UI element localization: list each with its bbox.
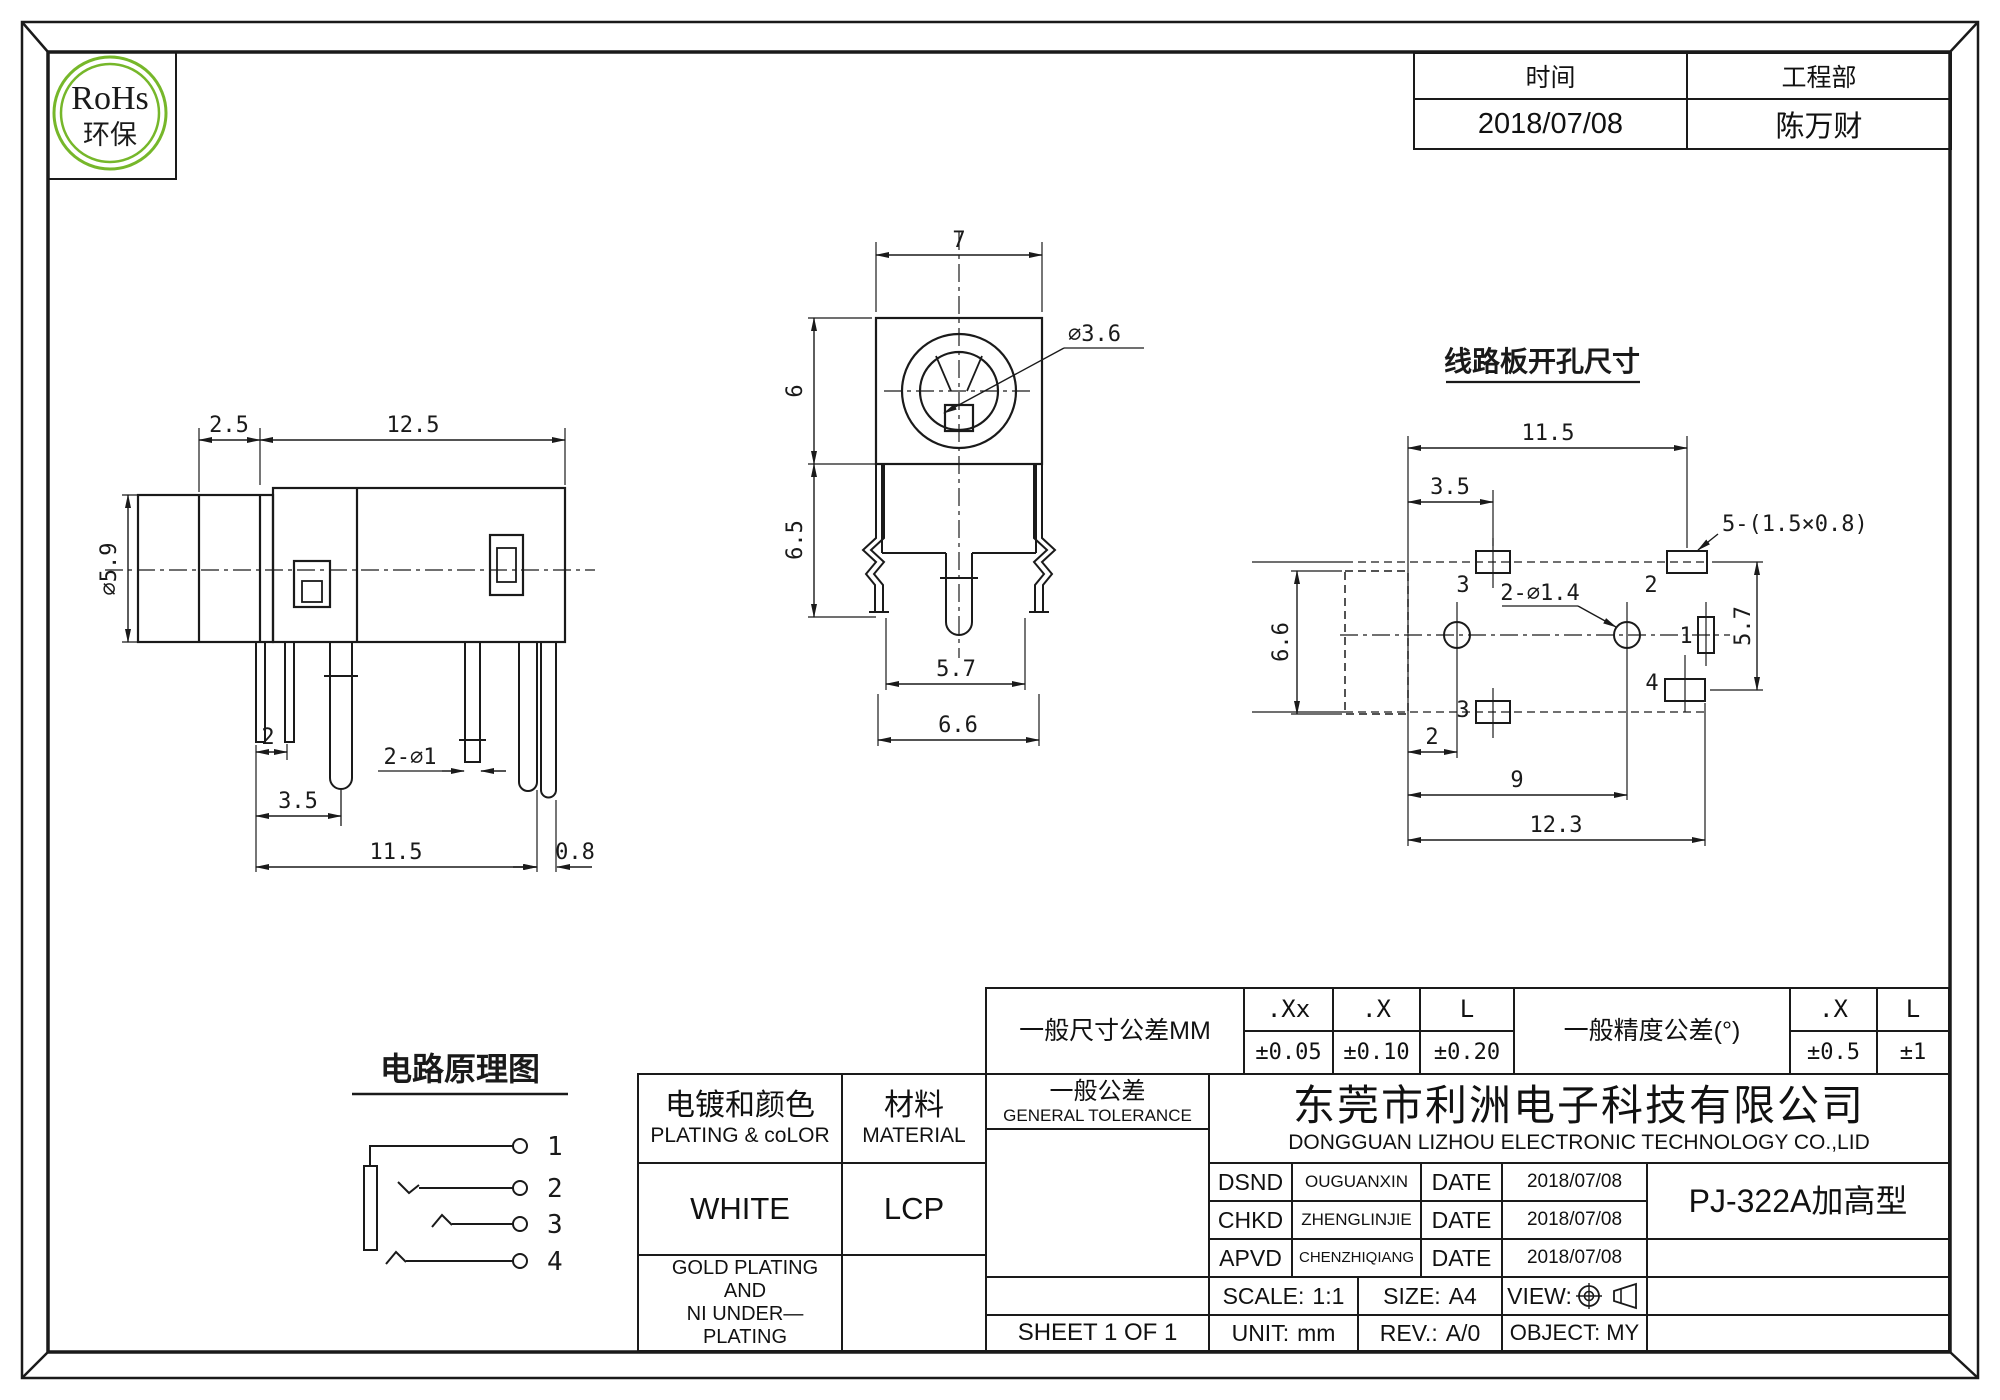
pcb-component-outline <box>1345 571 1408 714</box>
angle-tolerance-label: 一般精度公差(°) <box>1513 987 1791 1075</box>
pin-2-label: 2 <box>547 1174 563 1204</box>
approval-date-label-chkd: DATE <box>1420 1200 1503 1240</box>
size-value: A4 <box>1449 1283 1477 1309</box>
rohs-logo-subtext: 环保 <box>83 120 137 150</box>
angle-col-x: .X <box>1789 987 1878 1032</box>
side-dim-0-8: 0.8 <box>555 840 595 865</box>
general-tolerance-header: 一般公差 GENERAL TOLERANCE <box>985 1073 1210 1130</box>
tolerance-col-l: L <box>1419 987 1515 1032</box>
size-cell: SIZE: A4 <box>1357 1276 1503 1316</box>
pcb-pads <box>1476 538 1714 738</box>
revision-stamp: 时间 工程部 2018/07/08 陈万财 <box>1413 52 1952 150</box>
view-projection-icon <box>1576 1281 1642 1311</box>
rohs-logo-text: RoHs <box>71 80 148 117</box>
approval-role-dsnd: DSND <box>1208 1162 1293 1202</box>
plating-header-en: PLATING & coLOR <box>650 1124 829 1148</box>
approval-role-chkd: CHKD <box>1208 1200 1293 1240</box>
pad-3-bottom-label: 3 <box>1456 698 1469 723</box>
material-header: 材料 MATERIAL <box>841 1073 987 1164</box>
tolerance-val-l: ±0.20 <box>1419 1030 1515 1075</box>
pcb-layout-drawing: 线路板开孔尺寸 11.5 3.5 5-(1.5×0.8) 2-∅1.4 5.7 … <box>1252 346 1868 846</box>
front-dim-6: 6 <box>783 384 808 397</box>
tolerance-val-xx: ±0.05 <box>1243 1030 1334 1075</box>
stamp-time-value: 2018/07/08 <box>1413 98 1688 150</box>
side-view-drawing: 2.5 12.5 ∅5.9 2 3.5 2-∅1 11.5 0.8 <box>97 413 595 872</box>
pcb-dim-3-5: 3.5 <box>1430 475 1470 500</box>
front-view-drawing: 7 6 6.5 ∅3.6 5.7 6.6 <box>783 228 1144 746</box>
approval-date-chkd: 2018/07/08 <box>1501 1200 1648 1240</box>
pin-3-label: 3 <box>547 1210 563 1240</box>
sheet-cell: SHEET 1 OF 1 <box>985 1314 1210 1352</box>
rev-label: REV.: <box>1380 1320 1438 1346</box>
company-name-en: DONGGUAN LIZHOU ELECTRONIC TECHNOLOGY CO… <box>1288 1131 1869 1155</box>
front-dim-7: 7 <box>952 228 965 253</box>
pad-3-top-label: 3 <box>1456 573 1469 598</box>
unit-value: mm <box>1297 1320 1335 1346</box>
front-dim-5-7: 5.7 <box>936 657 976 682</box>
view-row-right-empty <box>1646 1276 1950 1316</box>
front-dim-6-5: 6.5 <box>783 520 808 560</box>
object-value: MY <box>1606 1320 1639 1345</box>
side-body <box>273 488 565 642</box>
angle-val-x: ±0.5 <box>1789 1030 1878 1075</box>
general-tolerance-body <box>985 1128 1210 1278</box>
side-dim-2: 2 <box>261 725 274 750</box>
general-tolerance-cn: 一般公差 <box>1050 1078 1146 1106</box>
approval-role-apvd: APVD <box>1208 1238 1293 1278</box>
approval-name-dsnd: OUGUANXIN <box>1291 1162 1422 1202</box>
rev-cell: REV.: A/0 <box>1357 1314 1503 1352</box>
terminal-1 <box>513 1139 527 1153</box>
terminal-2 <box>513 1181 527 1195</box>
rev-value: A/0 <box>1446 1320 1481 1346</box>
approval-name-apvd: CHENZHIQIANG <box>1291 1238 1422 1278</box>
side-dim-diam-5-9: ∅5.9 <box>97 543 122 596</box>
corner-chamfer-br <box>1950 1352 1978 1378</box>
corner-chamfer-bl <box>22 1352 48 1378</box>
front-dim-6-6: 6.6 <box>938 713 978 738</box>
material-header-cn: 材料 <box>884 1089 944 1124</box>
general-tolerance-en: GENERAL TOLERANCE <box>1003 1106 1192 1126</box>
schematic-sleeve <box>364 1166 377 1250</box>
pcb-view-title: 线路板开孔尺寸 <box>1444 346 1640 377</box>
plating-note: GOLD PLATING AND NI UNDER—PLATING <box>637 1254 843 1352</box>
company-cell: 东莞市利洲电子科技有限公司 DONGGUAN LIZHOU ELECTRONIC… <box>1208 1073 1950 1164</box>
corner-chamfer-tr <box>1950 22 1978 52</box>
object-label: OBJECT: <box>1510 1320 1600 1345</box>
front-dim-diam-3-6: ∅3.6 <box>1068 322 1121 347</box>
view-label: VIEW: <box>1507 1283 1572 1309</box>
scale-cell: SCALE: 1:1 <box>1208 1276 1359 1316</box>
rohs-logo-graphic: RoHs 环保 <box>48 52 173 176</box>
plating-note-line1: GOLD PLATING AND <box>649 1257 841 1303</box>
plating-header: 电镀和颜色 PLATING & coLOR <box>637 1073 843 1164</box>
pin-4-label: 4 <box>547 1247 563 1277</box>
tolerance-col-xx: .Xx <box>1243 987 1334 1032</box>
scale-row-left-empty <box>985 1276 1210 1316</box>
company-name-cn: 东莞市利洲电子科技有限公司 <box>1293 1082 1865 1130</box>
side-dim-2-diam1: 2-∅1 <box>384 745 437 770</box>
pad-2-label: 2 <box>1644 573 1657 598</box>
pcb-dim-11-5: 11.5 <box>1522 421 1575 446</box>
material-header-en: MATERIAL <box>862 1124 965 1148</box>
scale-value: 1:1 <box>1312 1283 1344 1309</box>
scale-label: SCALE: <box>1223 1283 1305 1309</box>
side-dim-11-5: 11.5 <box>370 840 423 865</box>
pcb-dim-holes: 2-∅1.4 <box>1500 581 1579 606</box>
terminal-4 <box>513 1254 527 1268</box>
pcb-dim-6-6: 6.6 <box>1269 622 1294 662</box>
schematic-title: 电路原理图 <box>380 1051 540 1087</box>
plating-note-line2: NI UNDER—PLATING <box>649 1303 841 1349</box>
terminal-3 <box>513 1217 527 1231</box>
object-cell: OBJECT: MY <box>1501 1314 1648 1352</box>
material-value: LCP <box>841 1162 987 1256</box>
circuit-schematic: 电路原理图 1 2 3 4 <box>352 1051 568 1277</box>
angle-col-l: L <box>1876 987 1950 1032</box>
part-name-cell: PJ-322A加高型 <box>1646 1162 1950 1240</box>
stamp-dept-value: 陈万财 <box>1686 98 1952 150</box>
pcb-dim-12-3: 12.3 <box>1530 813 1583 838</box>
approval-date-dsnd: 2018/07/08 <box>1501 1162 1648 1202</box>
pcb-dim-slot: 5-(1.5×0.8) <box>1722 512 1868 537</box>
tolerance-dim-label: 一般尺寸公差MM <box>985 987 1245 1075</box>
approval-date-label-dsnd: DATE <box>1420 1162 1503 1202</box>
tolerance-col-x: .X <box>1332 987 1421 1032</box>
unit-cell: UNIT: mm <box>1208 1314 1359 1352</box>
pcb-dim-5-7: 5.7 <box>1731 606 1756 646</box>
approval-date-label-apvd: DATE <box>1420 1238 1503 1278</box>
stamp-dept-header: 工程部 <box>1686 52 1952 100</box>
rohs-logo: RoHs 环保 <box>48 52 177 180</box>
size-label: SIZE: <box>1383 1283 1441 1309</box>
approval-date-apvd: 2018/07/08 <box>1501 1238 1648 1278</box>
part-name-empty <box>1646 1238 1950 1278</box>
side-dim-3-5: 3.5 <box>278 789 318 814</box>
side-dim-2-5: 2.5 <box>209 413 249 438</box>
corner-chamfer-tl <box>22 22 48 52</box>
tolerance-val-x: ±0.10 <box>1332 1030 1421 1075</box>
approval-name-chkd: ZHENGLINJIE <box>1291 1200 1422 1240</box>
stamp-time-header: 时间 <box>1413 52 1688 100</box>
plating-value: WHITE <box>637 1162 843 1256</box>
unit-label: UNIT: <box>1232 1320 1290 1346</box>
angle-val-l: ±1 <box>1876 1030 1950 1075</box>
side-dim-12-5: 12.5 <box>387 413 440 438</box>
side-barrel <box>138 495 273 642</box>
plating-header-cn: 电镀和颜色 <box>665 1089 815 1124</box>
pin-1-label: 1 <box>547 1132 563 1162</box>
pcb-dim-9: 9 <box>1510 768 1523 793</box>
pad-1-label: 1 <box>1679 624 1692 649</box>
drawing-sheet: 2.5 12.5 ∅5.9 2 3.5 2-∅1 11.5 0.8 <box>0 0 2000 1400</box>
pcb-dim-2: 2 <box>1425 725 1438 750</box>
pad-4-label: 4 <box>1645 671 1658 696</box>
view-cell: VIEW: <box>1501 1276 1648 1316</box>
material-note-empty <box>841 1254 987 1352</box>
bottom-row-right-empty <box>1646 1314 1950 1352</box>
